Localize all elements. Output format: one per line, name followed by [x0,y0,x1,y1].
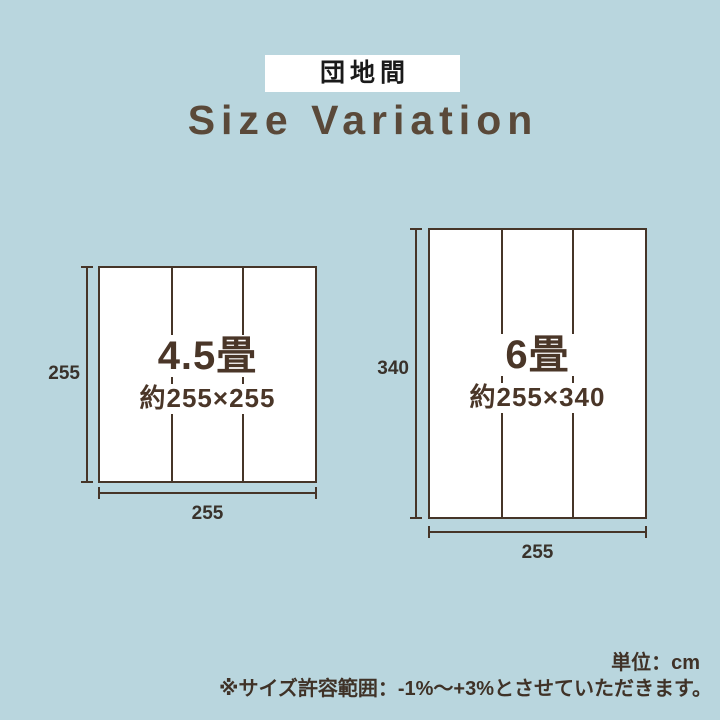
rug-outline-4-5: 4.5畳 約255×255 [98,266,317,483]
approx-size-label: 約255×340 [465,383,611,413]
height-dimension-label: 340 [367,359,409,378]
width-dimension-label: 255 [428,543,647,562]
tatami-count-label: 6畳 [499,334,575,376]
rug-labels-4-5: 4.5畳 約255×255 [100,268,315,481]
tatami-count-label: 4.5畳 [152,335,264,377]
height-dimension-line [415,228,417,519]
rug-outline-6: 6畳 約255×340 [428,228,647,519]
approx-size-label: 約255×255 [135,384,281,414]
rug-labels-6: 6畳 約255×340 [430,230,645,517]
size-tolerance-note: ※サイズ許容範囲：-1%〜+3%とさせていただきます。 [219,677,712,701]
unit-note: 単位：cm [611,651,700,675]
size-variation-infographic: 団地間 Size Variation 4.5畳 約255×255 255 255… [0,0,720,720]
width-dimension-line [428,531,647,533]
